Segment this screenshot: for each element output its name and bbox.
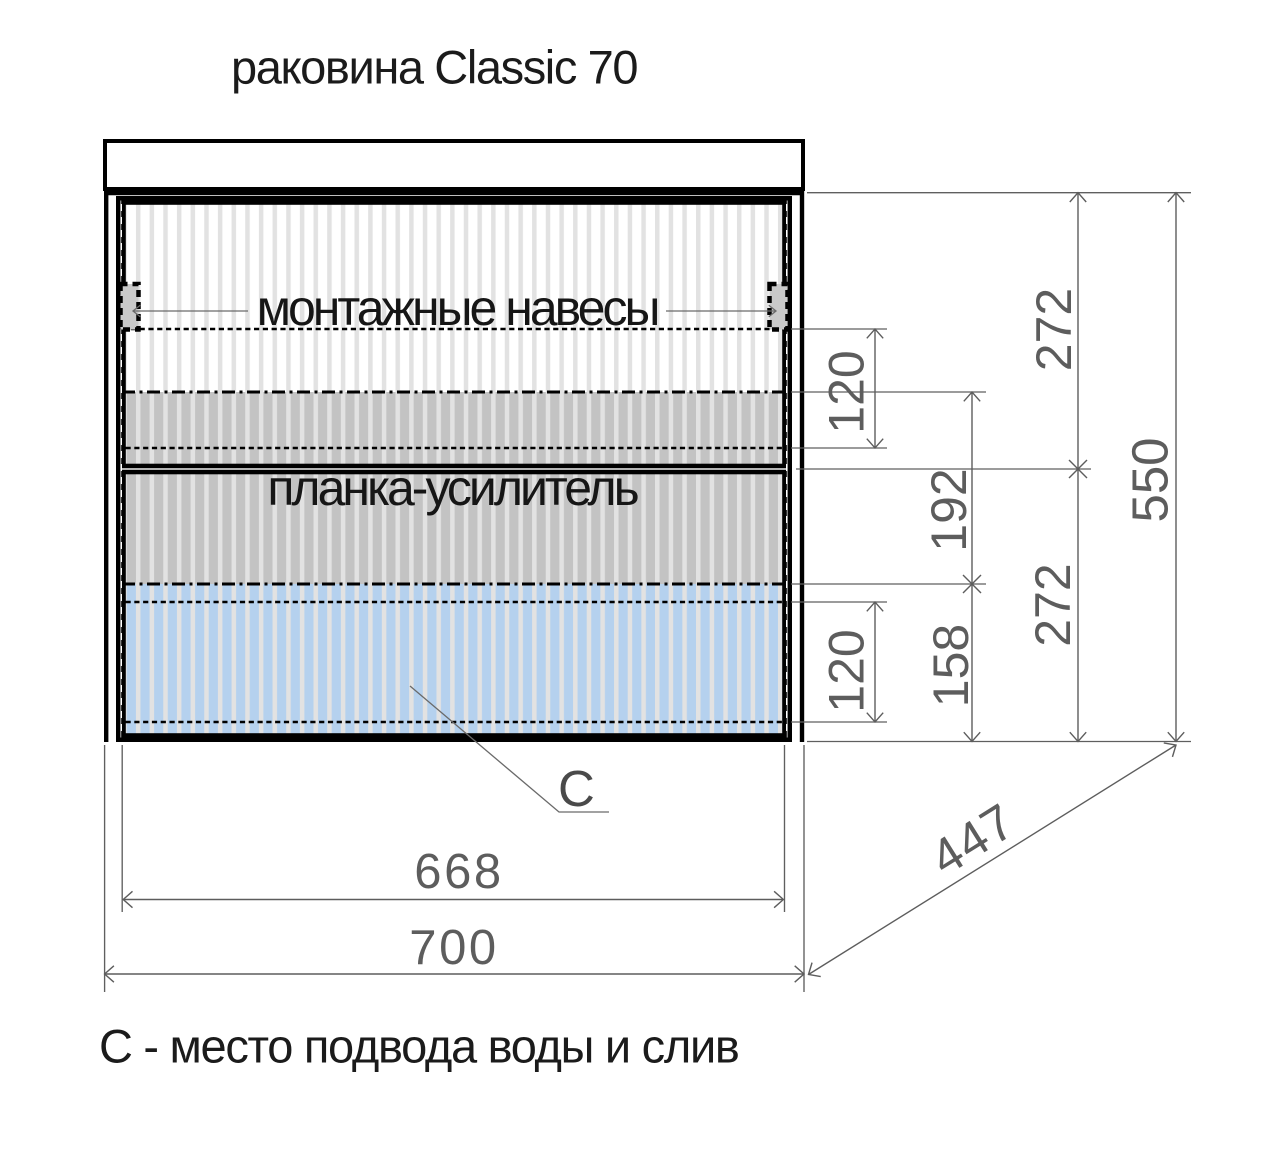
svg-text:планка-усилитель: планка-усилитель	[267, 460, 637, 516]
svg-text:272: 272	[1025, 563, 1081, 646]
svg-text:С - место подвода воды и слив: С - место подвода воды и слив	[99, 1020, 739, 1073]
svg-text:120: 120	[819, 629, 875, 712]
svg-text:272: 272	[1026, 288, 1082, 371]
svg-text:192: 192	[921, 468, 977, 551]
svg-text:700: 700	[409, 921, 499, 975]
svg-text:раковина Classic 70: раковина Classic 70	[231, 41, 637, 94]
svg-text:монтажные навесы: монтажные навесы	[257, 280, 658, 336]
svg-text:550: 550	[1121, 437, 1178, 522]
svg-text:C: C	[558, 760, 595, 817]
svg-text:668: 668	[414, 845, 504, 899]
svg-text:158: 158	[923, 624, 979, 707]
svg-text:120: 120	[819, 350, 875, 433]
